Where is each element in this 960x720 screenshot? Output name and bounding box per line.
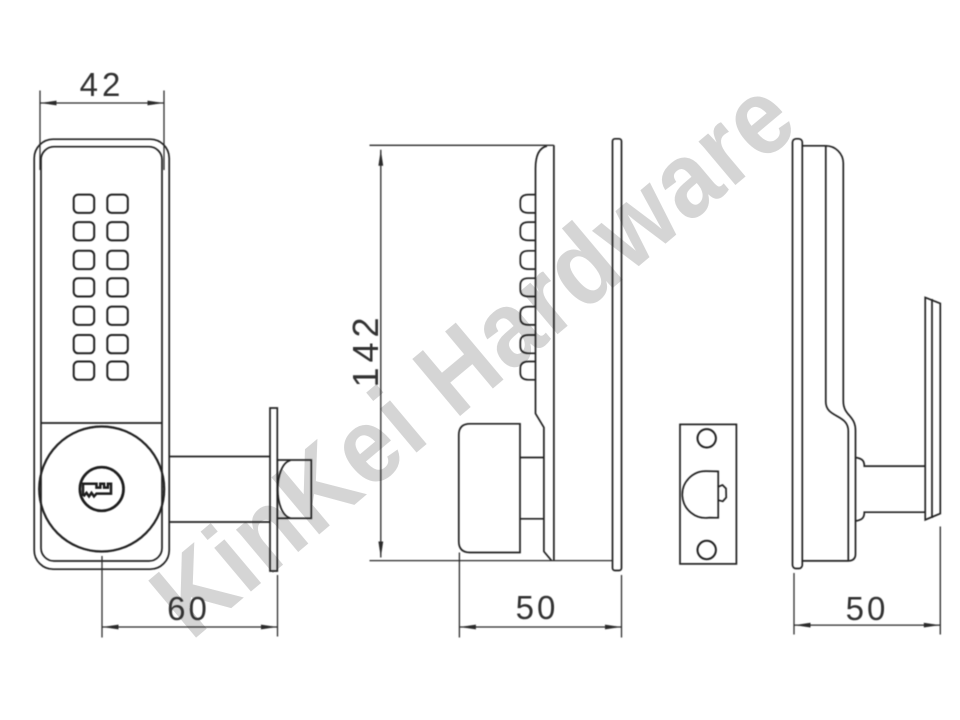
svg-text:60: 60 (167, 590, 210, 627)
svg-text:50: 50 (846, 590, 889, 627)
svg-text:50: 50 (516, 589, 559, 626)
svg-text:142: 142 (345, 312, 386, 387)
svg-text:42: 42 (80, 66, 125, 103)
